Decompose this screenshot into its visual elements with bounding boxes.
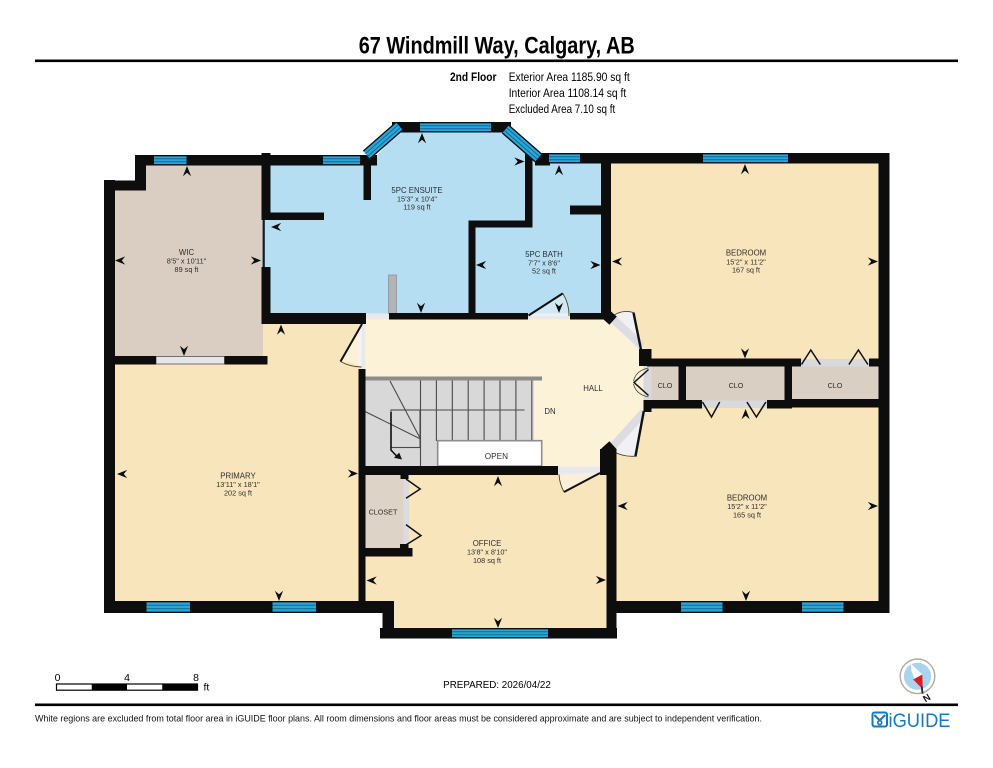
svg-text:Excluded Area 7.10 sq ft: Excluded Area 7.10 sq ft: [509, 102, 616, 116]
svg-text:202 sq ft: 202 sq ft: [224, 488, 252, 497]
svg-text:67 Windmill Way, Calgary, AB: 67 Windmill Way, Calgary, AB: [359, 33, 635, 60]
svg-text:PREPARED: 2026/04/22: PREPARED: 2026/04/22: [443, 680, 551, 691]
svg-text:CLO: CLO: [729, 381, 744, 390]
svg-text:89 sq ft: 89 sq ft: [175, 265, 199, 274]
svg-text:52 sq ft: 52 sq ft: [532, 267, 556, 276]
svg-text:Interior Area 1108.14 sq ft: Interior Area 1108.14 sq ft: [509, 86, 627, 100]
svg-text:4: 4: [124, 672, 130, 684]
svg-text:White regions are excluded fro: White regions are excluded from total fl…: [35, 713, 762, 724]
svg-text:Exterior Area 1185.90 sq ft: Exterior Area 1185.90 sq ft: [509, 70, 630, 84]
svg-text:167 sq ft: 167 sq ft: [732, 266, 760, 275]
svg-text:CLO: CLO: [828, 381, 843, 390]
svg-text:HALL: HALL: [583, 384, 603, 393]
svg-text:8: 8: [193, 672, 199, 684]
svg-text:2nd Floor: 2nd Floor: [450, 70, 497, 84]
svg-text:CLO: CLO: [658, 381, 673, 390]
svg-text:0: 0: [55, 672, 61, 684]
svg-text:CLOSET: CLOSET: [369, 508, 398, 517]
svg-text:165 sq ft: 165 sq ft: [733, 511, 761, 520]
svg-text:108 sq ft: 108 sq ft: [473, 556, 501, 565]
svg-text:iGUIDE: iGUIDE: [889, 710, 951, 732]
svg-text:OPEN: OPEN: [485, 452, 508, 461]
svg-text:ft: ft: [204, 682, 210, 694]
svg-text:DN: DN: [544, 407, 555, 416]
svg-text:119 sq ft: 119 sq ft: [403, 203, 430, 212]
